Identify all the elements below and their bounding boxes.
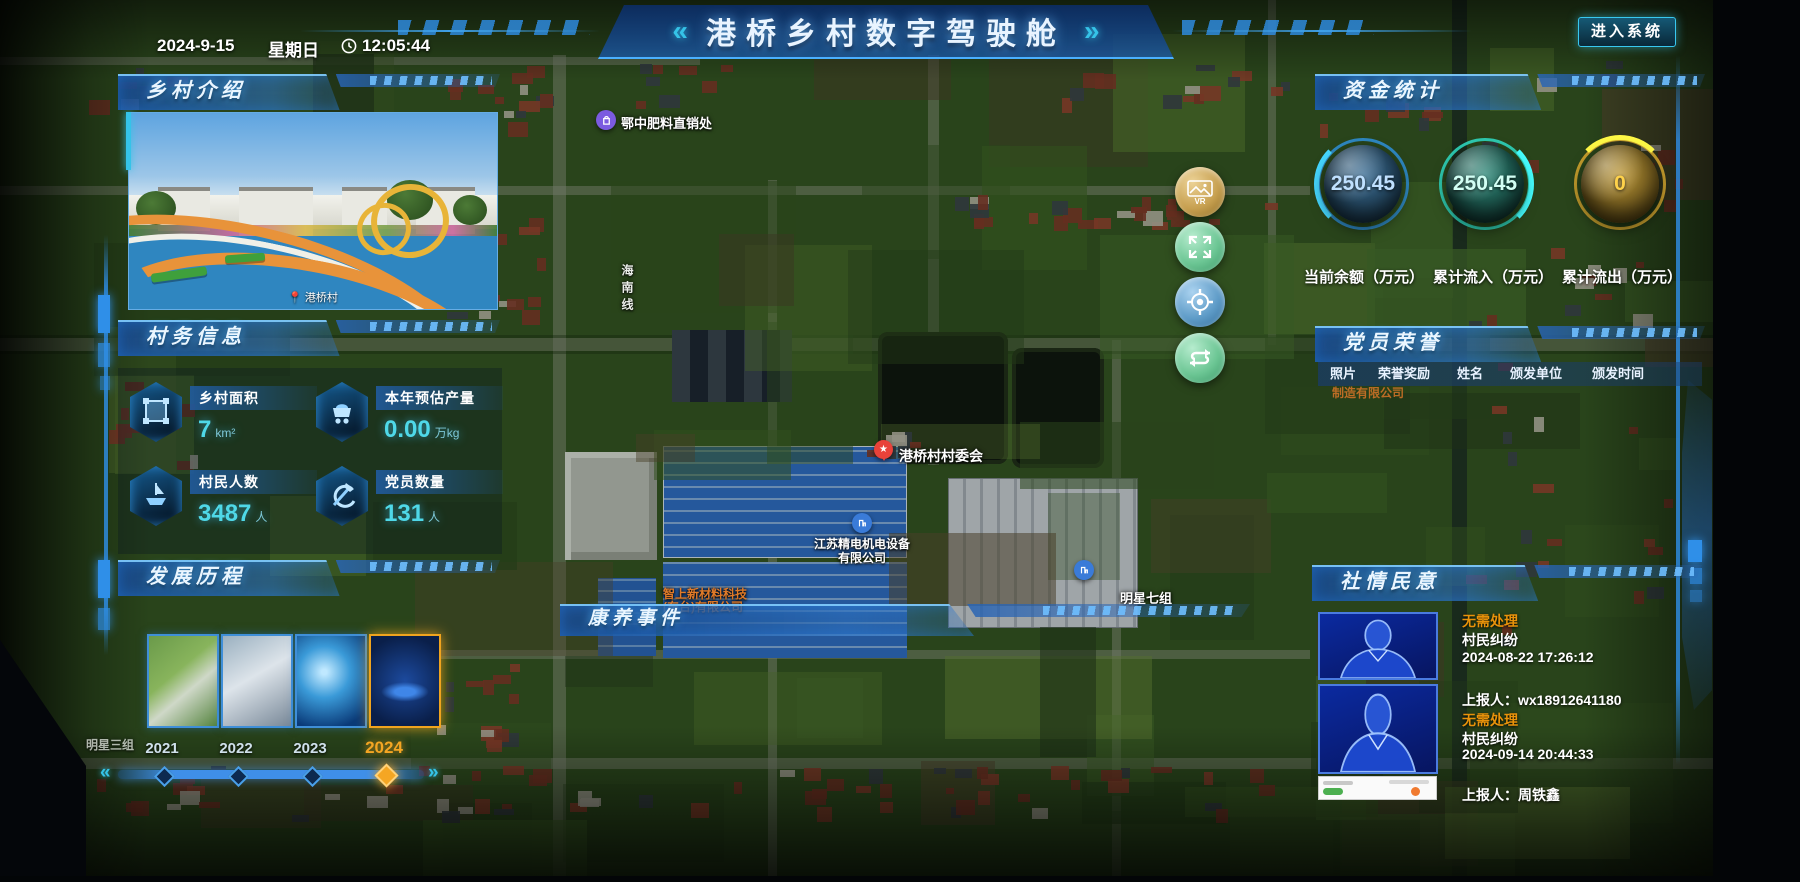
map-house (508, 122, 528, 137)
sentiment-status[interactable]: 无需处理 (1462, 611, 1518, 631)
panel-affairs-header: 村务信息 (118, 320, 500, 354)
photo-accent (126, 112, 131, 170)
map-house (640, 64, 652, 74)
honors-col-date: 颁发时间 (1592, 362, 1644, 386)
map-house (507, 299, 524, 310)
map-house (1521, 530, 1532, 544)
map-house (509, 694, 519, 704)
gauge-outflow-label: 累计流出（万元） (1542, 266, 1702, 287)
panel-honors-title: 党员荣誉 (1343, 326, 1443, 360)
map-house (869, 769, 883, 784)
map-house (827, 779, 844, 791)
map-label-road: 海南线 (619, 264, 636, 315)
map-house (89, 100, 110, 115)
sentiment-attachment-thumb[interactable] (1318, 776, 1437, 800)
frame-left-block (98, 295, 110, 333)
map-house (504, 111, 514, 118)
honors-col-issuer: 颁发单位 (1510, 362, 1562, 386)
panel-funds-header: 资金统计 (1315, 74, 1705, 108)
sentiment-item-avatar[interactable] (1318, 684, 1438, 774)
map-house (483, 680, 494, 695)
map-house (721, 65, 733, 72)
map-house (1196, 65, 1215, 71)
enter-system-button[interactable]: 进入系统 (1578, 17, 1676, 47)
map-house (466, 681, 484, 687)
company-marker-icon[interactable] (852, 513, 872, 533)
map-house (1151, 767, 1172, 773)
map-house (1095, 74, 1116, 89)
map-house (1108, 779, 1129, 793)
map-house (1185, 86, 1200, 94)
map-house (780, 770, 795, 777)
stat-estimated-yield: 本年预估产量 0.00万kg (310, 378, 496, 460)
header-decor-right (1182, 20, 1374, 35)
map-house (978, 791, 990, 805)
map-house (1492, 406, 1507, 414)
map-house (522, 310, 540, 325)
history-thumb-2023[interactable] (295, 634, 367, 728)
app-title-bar: « 港桥乡村数字驾驶舱 » (598, 5, 1174, 59)
map-field-patch (1367, 249, 1526, 327)
panel-sentiment-header: 社情民意 (1312, 565, 1702, 599)
map-house (956, 800, 975, 815)
map-house (167, 804, 181, 810)
map-house (1320, 124, 1328, 138)
map-house (1121, 768, 1130, 778)
map-house (1547, 539, 1562, 546)
year-2021[interactable]: 2021 (132, 740, 192, 757)
map-house (494, 809, 514, 815)
photo-caption: 📍 港桥村 (129, 289, 497, 305)
map-house (479, 311, 491, 319)
map-house (1250, 769, 1264, 783)
stat-label: 村民人数 (190, 470, 317, 494)
screen-black-right (1713, 0, 1800, 882)
area-icon (130, 382, 182, 442)
map-house (367, 796, 388, 808)
gauge-inflow-value: 250.45 (1439, 138, 1531, 230)
map-house (493, 675, 511, 684)
panel-affairs-title: 村务信息 (146, 320, 246, 354)
map-house (653, 65, 663, 74)
map-house (1094, 218, 1111, 229)
panel-history-header: 发展历程 (118, 560, 500, 594)
map-house (1259, 785, 1275, 796)
map-house (445, 697, 454, 712)
sentiment-datetime: 2024-08-22 17:26:12 (1462, 649, 1594, 665)
map-field-patch (1267, 473, 1387, 513)
panel-funds-title: 资金统计 (1343, 74, 1443, 108)
map-house (503, 766, 524, 775)
panel-wellness-title: 康养事件 (588, 604, 684, 634)
sentiment-reporter: 上报人：wx18912641180 (1462, 690, 1622, 710)
map-house (199, 802, 220, 808)
map-house (1051, 766, 1069, 780)
map-house (734, 782, 742, 794)
map-house (880, 802, 893, 813)
map-house (528, 297, 541, 307)
target-icon (1186, 288, 1214, 316)
panel-sentiment-title: 社情民意 (1340, 565, 1440, 599)
stat-label: 乡村面积 (190, 386, 317, 410)
gauge-inflow: 250.45 (1439, 138, 1531, 230)
map-house (856, 786, 871, 793)
map-house (1664, 499, 1673, 508)
map-house (1216, 809, 1228, 823)
current-date: 2024-9-15 (157, 36, 235, 56)
map-house (458, 807, 473, 814)
svg-text:VR: VR (1194, 197, 1205, 205)
map-label-group3: 明星三组 (86, 736, 134, 753)
frame-left-block (98, 343, 110, 367)
map-house (292, 815, 309, 822)
map-house (1018, 794, 1030, 802)
map-house (1508, 452, 1517, 466)
map-house (1167, 211, 1184, 220)
map-house (1029, 213, 1038, 224)
map-field-patch (1639, 438, 1679, 470)
timeline-prev-icon[interactable]: « (100, 762, 111, 784)
map-house (180, 791, 200, 805)
locate-button[interactable] (1175, 277, 1225, 327)
honors-col-photo: 照片 (1330, 362, 1356, 386)
map-house (812, 789, 827, 799)
frame-left-block (98, 608, 110, 630)
map-house (1032, 808, 1048, 819)
map-house (1228, 77, 1240, 87)
screen-black-bottom (0, 876, 1800, 882)
map-house (1271, 87, 1283, 96)
sentiment-status[interactable]: 无需处理 (1462, 710, 1518, 730)
map-house (1365, 109, 1379, 122)
map-field-patch (423, 820, 587, 876)
map-house (1644, 539, 1655, 547)
current-time: 12:05:44 (362, 36, 430, 56)
map-house (540, 94, 553, 108)
person-wireframe-icon (1320, 686, 1436, 772)
map-house (487, 740, 502, 752)
map-house (1052, 201, 1068, 215)
dashboard: 鄂中肥料直销处 ★ 港桥村村委会 江苏精电机电设备 有限公司 智上新材料科技 (… (0, 0, 1800, 882)
map-house (581, 798, 601, 806)
map-house (386, 785, 403, 794)
map-house (1200, 86, 1221, 101)
page-title: 港桥乡村数字驾驶舱 (706, 9, 1066, 53)
clock-icon (341, 38, 357, 54)
fullscreen-expand-button[interactable] (1175, 222, 1225, 272)
year-2022[interactable]: 2022 (206, 740, 266, 757)
map-house (974, 217, 993, 227)
vr-panorama-button[interactable]: VR (1175, 167, 1225, 217)
map-house (1565, 305, 1581, 316)
map-house (475, 799, 490, 814)
header-decor-left (398, 20, 590, 35)
map-field-patch (1040, 627, 1096, 757)
map-field-patch (565, 656, 653, 687)
village-photo[interactable]: 📍 港桥村 (128, 112, 498, 310)
map-field-patch (1333, 820, 1420, 876)
map-house (1071, 780, 1080, 790)
map-house (955, 197, 969, 211)
header-line-right (1172, 30, 1472, 32)
year-2024[interactable]: 2024 (354, 738, 414, 758)
shop-marker-icon[interactable] (596, 110, 616, 130)
map-label-company-blue-2: 有限公司 (787, 549, 937, 566)
map-house (946, 788, 954, 794)
map-field-patch (636, 434, 695, 462)
panel-intro-title: 乡村介绍 (146, 74, 246, 108)
map-field-patch (1020, 422, 1214, 489)
current-weekday: 星期日 (268, 36, 319, 61)
stat-party-members: 党员数量 131人 (310, 462, 496, 544)
panel-honors-header: 党员荣誉 (1315, 326, 1705, 360)
stat-label: 党员数量 (376, 470, 503, 494)
refresh-switch-button[interactable] (1175, 333, 1225, 383)
person-wireframe-icon (1320, 614, 1436, 678)
map-house (1534, 417, 1544, 432)
map-house (520, 85, 528, 95)
map-house (1551, 248, 1565, 259)
map-house (1265, 203, 1278, 210)
map-field-patch (1151, 499, 1271, 573)
map-house (510, 664, 520, 672)
panel-history-title: 发展历程 (146, 560, 246, 594)
title-chevron-left-icon: « (672, 15, 688, 47)
map-house (1101, 770, 1122, 781)
map-house (537, 258, 546, 271)
map-house (1606, 61, 1623, 69)
map-house (955, 769, 972, 778)
map-house (1070, 88, 1084, 101)
map-house (1629, 427, 1638, 434)
map-label-behind-honors: 制造有限公司 (1332, 384, 1404, 401)
map-house (447, 312, 468, 319)
photo-tree (453, 195, 487, 225)
map-house (934, 768, 946, 774)
swap-arrows-icon (1186, 346, 1214, 370)
gauge-balance-value: 250.45 (1317, 138, 1409, 230)
map-house (659, 95, 680, 108)
map-house (325, 794, 340, 800)
map-house (1131, 207, 1147, 213)
frame-right-block (1688, 540, 1702, 562)
frame-left-block (100, 376, 110, 390)
map-field-patch (814, 56, 951, 100)
map-house (978, 195, 988, 210)
panel-wellness-header: 康养事件 (560, 604, 1250, 634)
gauge-outflow: 0 (1574, 138, 1666, 230)
map-house (512, 73, 533, 84)
map-field-patch (1384, 393, 1580, 449)
stat-villagers: 村民人数 3487人 (124, 462, 310, 544)
committee-pin-icon[interactable]: ★ (874, 440, 893, 459)
sentiment-type: 村民纠纷 (1462, 630, 1518, 650)
expand-arrows-icon (1187, 234, 1213, 260)
map-house (1143, 211, 1163, 226)
map-house (636, 101, 646, 109)
header-line-left (300, 30, 600, 32)
map-house (1163, 95, 1182, 109)
cart-icon (316, 382, 368, 442)
map-field-patch (848, 250, 1024, 364)
map-house (1595, 294, 1612, 300)
honors-col-award: 荣誉奖励 (1378, 362, 1430, 386)
stat-value: 7km² (198, 416, 235, 444)
year-2023[interactable]: 2023 (280, 740, 340, 757)
map-house (1533, 484, 1554, 493)
map-house (639, 795, 653, 808)
map-house (1168, 199, 1176, 210)
map-field-patch (797, 678, 863, 738)
sentiment-item-avatar[interactable] (1318, 612, 1438, 680)
map-house (880, 784, 892, 798)
map-house (519, 227, 540, 235)
map-compound-grey (565, 452, 657, 560)
history-thumb-2022[interactable] (221, 634, 293, 728)
map-house (646, 77, 660, 86)
stat-label: 本年预估产量 (376, 386, 503, 410)
map-house (126, 803, 143, 812)
map-house (516, 111, 526, 118)
vr-image-icon: VR (1186, 179, 1214, 205)
panel-intro-header: 乡村介绍 (118, 74, 500, 108)
stat-village-area: 乡村面积 7km² (124, 378, 310, 460)
map-label-fertilizer: 鄂中肥料直销处 (621, 113, 712, 132)
boat-icon (130, 466, 182, 526)
map-field-patch (719, 234, 794, 306)
map-house (679, 66, 697, 75)
stat-value: 131人 (384, 500, 440, 528)
map-house (442, 811, 460, 823)
sentiment-datetime: 2024-09-14 20:44:33 (1462, 746, 1594, 762)
map-house (804, 768, 821, 781)
map-house (702, 81, 717, 93)
history-thumb-2024[interactable] (369, 634, 441, 728)
title-chevron-right-icon: » (1084, 15, 1100, 47)
frame-right-line (1676, 55, 1680, 765)
party-emblem-icon (316, 466, 368, 526)
map-house (1648, 547, 1663, 555)
honors-col-name: 姓名 (1457, 362, 1483, 386)
honors-table-header: 照片 荣誉奖励 姓名 颁发单位 颁发时间 (1318, 362, 1702, 386)
map-house (443, 775, 456, 784)
stat-value: 3487人 (198, 500, 267, 528)
map-house (529, 775, 547, 786)
map-house (446, 682, 454, 692)
map-house (1204, 772, 1213, 785)
gauge-outflow-value: 0 (1574, 138, 1666, 230)
map-house (977, 767, 988, 779)
map-house (1419, 118, 1429, 131)
timeline-next-icon[interactable]: » (428, 762, 439, 784)
map-house (691, 803, 709, 818)
group7-marker-icon[interactable] (1074, 560, 1094, 580)
history-thumb-2021[interactable] (147, 634, 219, 728)
map-label-committee: 港桥村村委会 (899, 446, 983, 466)
stat-value: 0.00万kg (384, 416, 459, 444)
map-house (472, 771, 481, 781)
gauge-balance: 250.45 (1317, 138, 1409, 230)
sentiment-reporter: 上报人：周铁鑫 (1462, 785, 1560, 805)
map-house (1503, 432, 1512, 444)
frame-left-block (98, 560, 110, 598)
map-house (817, 807, 832, 822)
